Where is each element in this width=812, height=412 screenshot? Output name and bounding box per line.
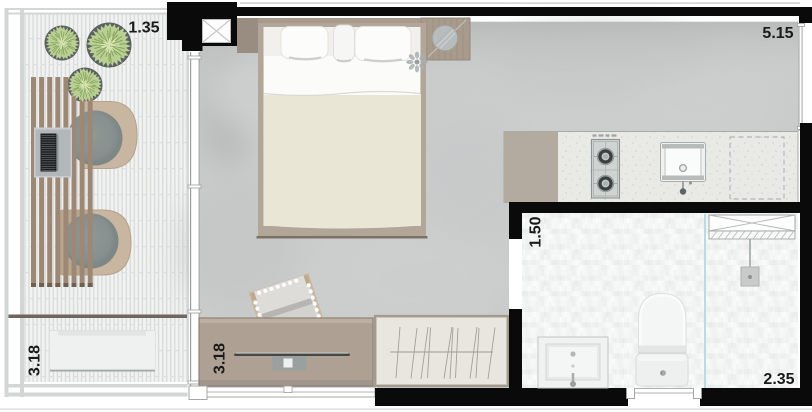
svg-text:2.35: 2.35: [763, 371, 794, 388]
svg-text:5.15: 5.15: [762, 25, 793, 42]
svg-text:3.18: 3.18: [26, 345, 43, 376]
svg-text:1.35: 1.35: [128, 20, 159, 37]
svg-text:3.18: 3.18: [212, 343, 229, 374]
svg-text:1.50: 1.50: [528, 216, 545, 247]
